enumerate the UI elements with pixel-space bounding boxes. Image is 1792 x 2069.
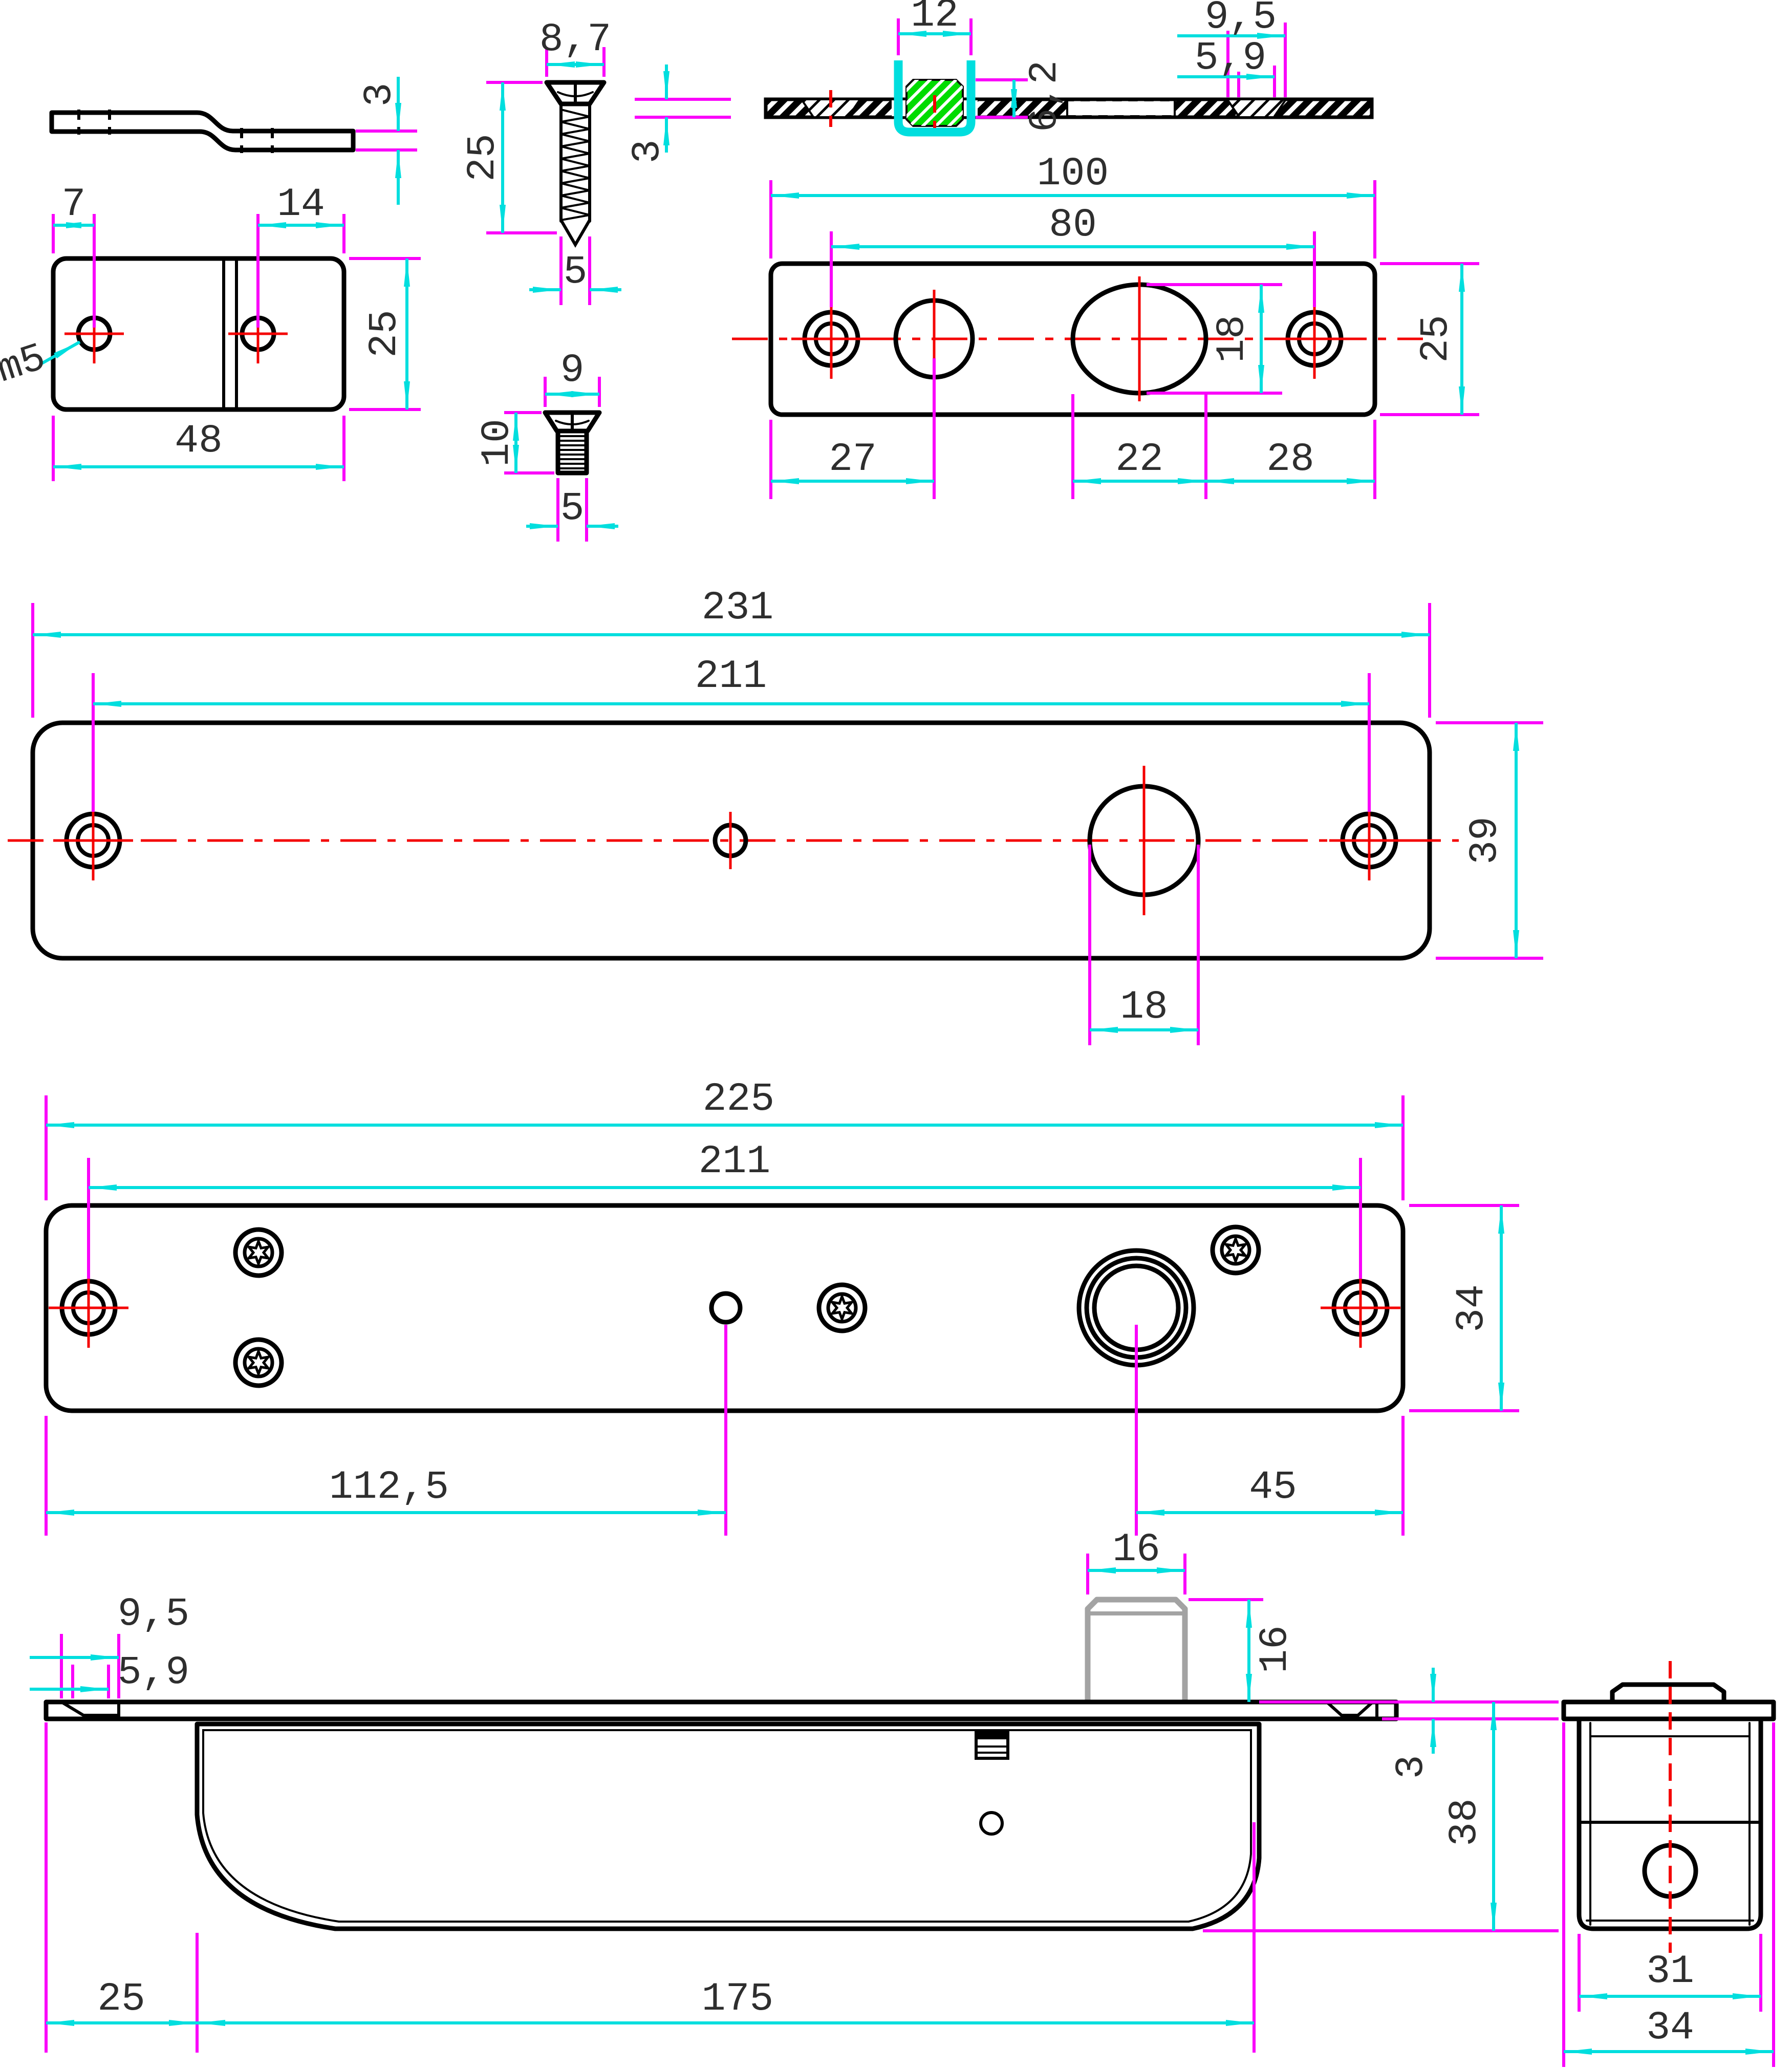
- dim-bracket-thickness: 3: [357, 83, 402, 107]
- dim-woodscrew-head: 8,7: [539, 17, 611, 62]
- dim-body-plate-thickness: 3: [1389, 1755, 1434, 1779]
- dim-insert-height: 6,2: [1023, 60, 1068, 132]
- dim-insert-width: 12: [911, 0, 959, 38]
- dim-cover-width: 231: [702, 586, 773, 631]
- dim-machinescrew-length: 10: [475, 419, 520, 467]
- dim-cover-height: 39: [1463, 816, 1508, 865]
- dim-countersink-outer: 9,5: [1205, 0, 1277, 40]
- dim-bracket-hole2-offset: 14: [277, 182, 325, 227]
- dim-mount-center-offset: 112,5: [329, 1465, 449, 1510]
- dim-faceplate-left-offset: 27: [829, 437, 877, 482]
- dim-body-countersink-inner: 5,9: [118, 1650, 189, 1695]
- end-bolt-tab: [1612, 1685, 1724, 1702]
- dim-faceplate-width: 100: [1037, 152, 1109, 197]
- dim-machinescrew-head: 9: [560, 348, 585, 393]
- dim-body-countersink-outer: 9,5: [118, 1592, 189, 1637]
- dim-cylinder-height: 18: [1210, 315, 1255, 363]
- dim-bolt-height: 16: [1253, 1625, 1298, 1673]
- dim-cover-hole-span: 211: [695, 654, 767, 699]
- dim-end-outer-width: 34: [1646, 2006, 1694, 2051]
- dim-machinescrew-dia: 5: [560, 486, 585, 531]
- machine-screw-shank: [558, 431, 587, 473]
- dim-mount-height: 34: [1450, 1284, 1495, 1332]
- dim-mount-width: 225: [703, 1077, 774, 1122]
- dim-body-total-height: 38: [1442, 1798, 1487, 1846]
- dim-bracket-width: 48: [175, 419, 223, 464]
- dim-faceplate-hole-span: 80: [1049, 203, 1097, 248]
- dim-mount-hole-span: 211: [699, 1139, 770, 1184]
- dim-bracket-height: 25: [362, 310, 407, 358]
- dim-cover-hole-dia: 18: [1120, 985, 1168, 1030]
- dim-body-left-offset: 25: [97, 1977, 145, 2022]
- dim-woodscrew-dia: 5: [564, 250, 588, 295]
- dim-end-inner-width: 31: [1646, 1949, 1694, 1994]
- dim-bolt-width: 16: [1112, 1527, 1160, 1572]
- dim-cylinder-width: 22: [1115, 437, 1163, 482]
- dim-faceplate-height: 25: [1414, 315, 1459, 363]
- dim-countersink-inner: 5,9: [1195, 36, 1266, 81]
- dim-woodscrew-length: 25: [461, 134, 506, 182]
- dim-bracket-hole1-offset: 7: [62, 182, 86, 227]
- technical-drawing-canvas: 3 7 14 25 48 m5: [0, 0, 1792, 2069]
- dim-faceplate-right-offset: 28: [1266, 437, 1314, 482]
- dim-mount-boss-offset: 45: [1249, 1465, 1297, 1510]
- dim-body-length: 175: [702, 1977, 773, 2022]
- dim-section-thickness: 3: [625, 140, 671, 164]
